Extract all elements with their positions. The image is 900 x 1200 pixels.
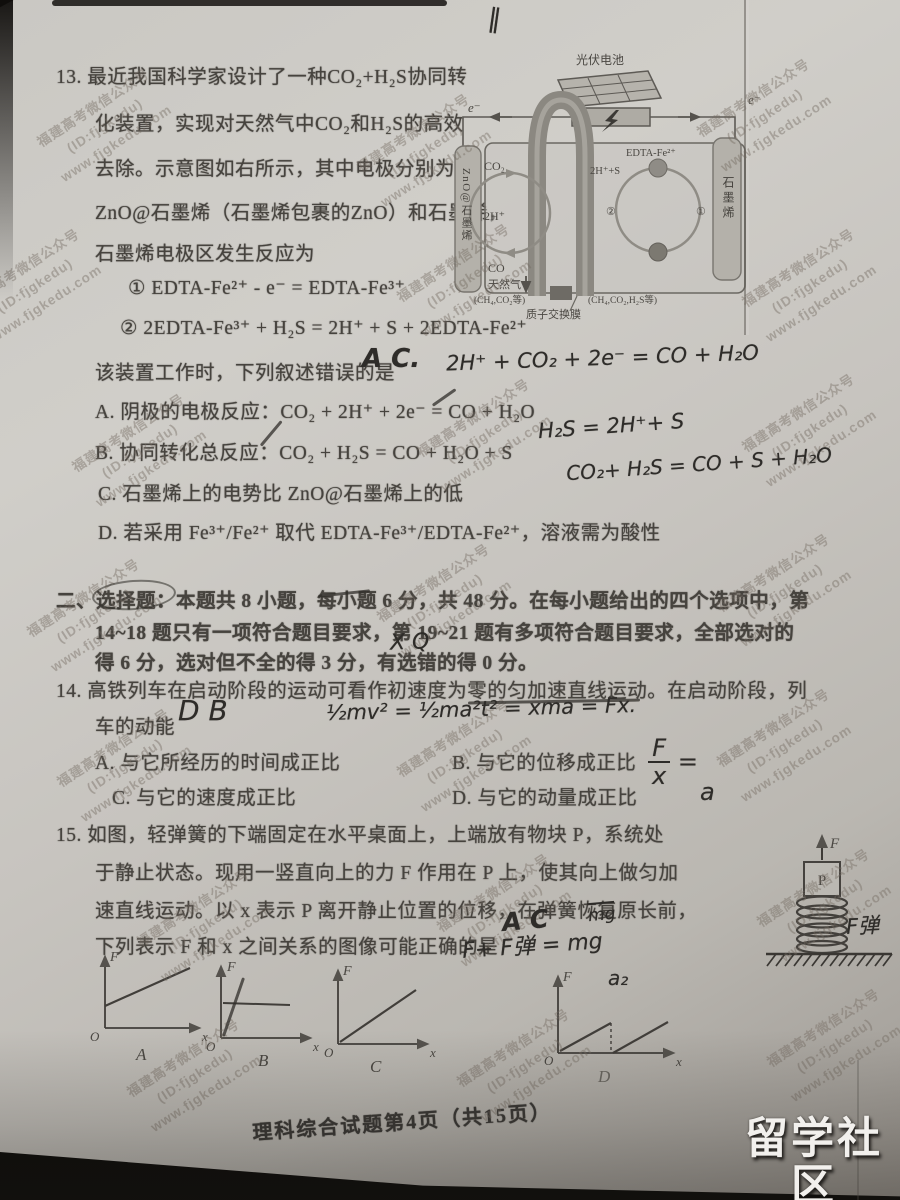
y-axis-label: F xyxy=(226,960,236,975)
q13-stem: 该装置工作时，下列叙述错误的是 xyxy=(95,356,395,385)
electrode-right-label: 石墨烯 xyxy=(720,176,737,221)
force-label: F xyxy=(829,836,840,852)
membrane-label: 质子交换膜 xyxy=(526,307,581,321)
catalyst-sphere-top xyxy=(649,159,667,177)
x-axis-label: x xyxy=(429,1045,436,1060)
h2s-products-label: 2H⁺+S xyxy=(590,166,620,177)
handwritten-fraction-q14: Fx = xyxy=(648,736,698,789)
q13-option-d: D. 若采用 Fe³⁺/Fe²⁺ 取代 EDTA-Fe³⁺/EDTA-Fe²⁺，… xyxy=(98,516,661,545)
solar-cell-label: 光伏电池 xyxy=(576,53,624,67)
paper-fold-highlight xyxy=(746,0,749,335)
handwritten-answer-q13: A C. xyxy=(362,344,420,374)
handwritten-mg: mg xyxy=(587,901,616,926)
handwritten-answer-q14: D B xyxy=(178,694,228,727)
photo-left-edge xyxy=(0,0,13,300)
reaction2-marker: ② xyxy=(606,206,616,218)
electrode-left-label: ZnO@石墨烯 xyxy=(458,168,474,242)
y-axis-label: F xyxy=(562,970,572,985)
fraction-equals: = xyxy=(678,748,698,776)
site-logo: 留学社区 bbs.liuxue86.com xyxy=(728,1116,900,1200)
section2-line3: 得 6 分，选对但不全的得 3 分，有选错的得 0 分。 xyxy=(95,646,538,675)
handwritten-spring-force-label: F弹 xyxy=(845,909,880,941)
handwritten-mark-section2: X Q xyxy=(390,629,430,655)
logo-title: 留学社区 xyxy=(728,1116,900,1200)
membrane-foot xyxy=(550,286,572,300)
handwritten-fraction-result: a xyxy=(700,778,715,806)
co2-label: CO₂ xyxy=(484,159,505,173)
fraction: Fx xyxy=(648,736,670,789)
q14-option-d: D. 与它的动量成正比 xyxy=(452,781,637,810)
fraction-numerator: F xyxy=(652,736,666,761)
y-axis-label: F xyxy=(109,950,119,965)
reaction1-marker: ① xyxy=(696,206,706,218)
y-axis-label: F xyxy=(342,964,352,979)
handwritten-a2: a₂ xyxy=(608,966,628,990)
q13-option-c: C. 石墨烯上的电势比 ZnO@石墨烯上的低 xyxy=(98,477,463,506)
graph-line xyxy=(340,990,416,1042)
fraction-denominator: x xyxy=(648,761,670,789)
graph-c: O F x C xyxy=(310,946,460,1076)
graph-letter: A xyxy=(135,1045,147,1064)
q13-reaction1: ① EDTA-Fe²⁺ - e⁻ = EDTA-Fe³⁺ xyxy=(128,276,405,300)
catalyst-sphere-bottom xyxy=(649,243,667,261)
origin-label: O xyxy=(90,1029,100,1044)
origin-label: O xyxy=(324,1045,334,1060)
graph-letter: C xyxy=(370,1057,382,1076)
scanned-exam-photo: 13. 最近我国科学家设计了一种CO₂+H₂S协同转 化装置，实现对天然气中CO… xyxy=(0,0,900,1200)
photo-top-edge xyxy=(52,0,447,6)
graph-letter: D xyxy=(597,1067,611,1086)
x-axis-label: x xyxy=(675,1054,682,1069)
edta-label: EDTA-Fe²⁺ xyxy=(626,148,676,159)
q15-line1: 15. 如图，轻弹簧的下端固定在水平桌面上，上端放有物块 P，系统处 xyxy=(56,818,664,847)
gas-right-species: (CH₄,CO₂,H₂S等) xyxy=(588,294,657,306)
q13-line5: 石墨烯电极区发生反应为 xyxy=(95,237,315,266)
graph-line-2 xyxy=(613,1022,668,1053)
q15-line2: 于静止状态。现用一竖直向上的力 F 作用在 P 上，使其向上做匀加 xyxy=(95,856,678,885)
